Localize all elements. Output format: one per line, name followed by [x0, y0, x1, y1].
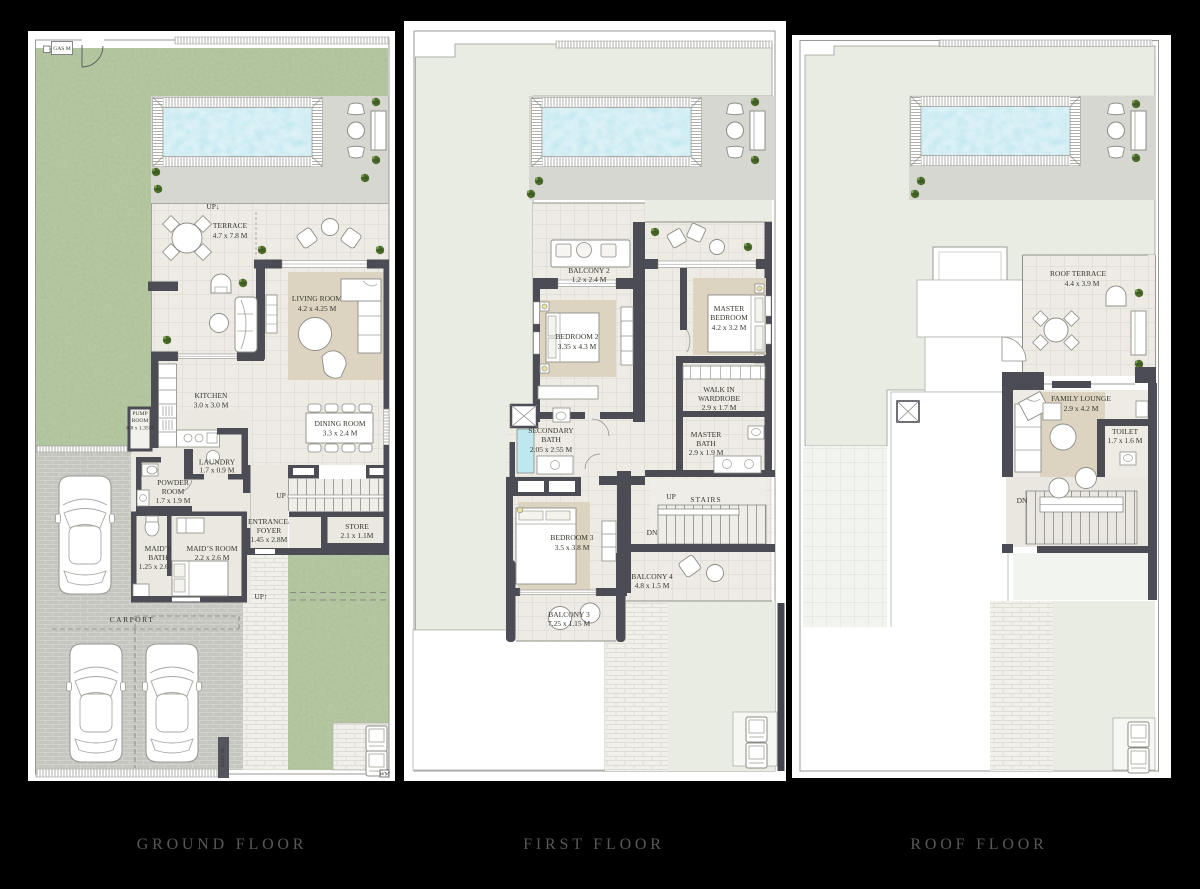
svg-text:3.3 x 2.4 M: 3.3 x 2.4 M: [323, 429, 358, 438]
svg-text:1.2 x 2.4 M: 1.2 x 2.4 M: [572, 275, 607, 284]
svg-text:4.2 x 3.2 M: 4.2 x 3.2 M: [712, 323, 747, 332]
svg-text:POWDER: POWDER: [157, 478, 189, 487]
svg-text:ROOF FLOOR: ROOF FLOOR: [910, 836, 1047, 853]
svg-text:BEDROOM: BEDROOM: [710, 313, 748, 322]
svg-text:BALCONY 2: BALCONY 2: [568, 266, 610, 275]
svg-text:4.7 x 7.8 M: 4.7 x 7.8 M: [213, 231, 248, 240]
svg-text:ROOF TERRACE: ROOF TERRACE: [1050, 269, 1106, 278]
svg-text:CARPORT: CARPORT: [110, 615, 155, 624]
svg-text:STAIRS: STAIRS: [690, 495, 721, 504]
svg-text:BALCONY 3: BALCONY 3: [548, 610, 590, 619]
svg-text:BATH: BATH: [541, 435, 561, 444]
svg-text:MASTER: MASTER: [691, 430, 721, 439]
svg-text:MAID’S: MAID’S: [145, 544, 172, 553]
svg-text:1.7 x 1.6 M: 1.7 x 1.6 M: [1108, 436, 1143, 445]
svg-text:FIRST FLOOR: FIRST FLOOR: [523, 836, 665, 853]
svg-text:GROUND FLOOR: GROUND FLOOR: [137, 836, 308, 853]
svg-text:UP↓: UP↓: [206, 202, 219, 211]
svg-text:2.9 x 4.2 M: 2.9 x 4.2 M: [1064, 404, 1099, 413]
svg-text:BATH: BATH: [148, 553, 168, 562]
svg-text:1.45 x 2.8M: 1.45 x 2.8M: [251, 535, 288, 544]
svg-text:2.9 x 1.7 M: 2.9 x 1.7 M: [702, 403, 737, 412]
svg-text:TERRACE: TERRACE: [213, 221, 248, 230]
svg-text:STORE: STORE: [345, 522, 369, 531]
svg-text:2.05 x 2.55 M: 2.05 x 2.55 M: [530, 445, 573, 454]
svg-text:BEDROOM 3: BEDROOM 3: [550, 533, 593, 542]
svg-text:3.5 x 3.8 M: 3.5 x 3.8 M: [555, 543, 590, 552]
svg-text:7.25 x 1.15 M: 7.25 x 1.15 M: [548, 619, 591, 628]
svg-text:FOYER: FOYER: [257, 526, 282, 535]
svg-text:WARDROBE: WARDROBE: [698, 394, 741, 403]
svg-text:BATH: BATH: [696, 439, 716, 448]
svg-text:2.2 x 2.6 M: 2.2 x 2.6 M: [195, 553, 230, 562]
svg-text:1.7 x 0.9 M: 1.7 x 0.9 M: [200, 466, 235, 475]
svg-text:BALCONY 4: BALCONY 4: [631, 572, 673, 581]
svg-text:4.8 x 1.5 M: 4.8 x 1.5 M: [635, 581, 670, 590]
svg-text:DN: DN: [1017, 496, 1028, 505]
svg-text:KITCHEN: KITCHEN: [195, 391, 228, 400]
svg-text:LIVING ROOM: LIVING ROOM: [292, 294, 343, 303]
svg-text:DINING ROOM: DINING ROOM: [314, 419, 365, 428]
svg-text:3.35 x 4.3 M: 3.35 x 4.3 M: [558, 342, 597, 351]
svg-text:WALK IN: WALK IN: [703, 385, 735, 394]
svg-text:SECONDARY: SECONDARY: [528, 426, 574, 435]
svg-text:BEDROOM 2: BEDROOM 2: [555, 332, 598, 341]
svg-text:UP↑: UP↑: [254, 592, 267, 601]
svg-text:ELEC M.: ELEC M.: [221, 747, 226, 766]
svg-text:0.8 x 1.35M: 0.8 x 1.35M: [126, 426, 153, 432]
svg-text:PUMP: PUMP: [132, 411, 147, 417]
svg-text:2.1 x 1.1M: 2.1 x 1.1M: [341, 531, 374, 540]
svg-text:GAS M: GAS M: [53, 46, 71, 52]
svg-text:WM: WM: [379, 772, 389, 778]
svg-text:4.4 x 3.9 M: 4.4 x 3.9 M: [1065, 279, 1100, 288]
svg-text:2.9 x 1.9 M: 2.9 x 1.9 M: [689, 448, 724, 457]
svg-text:DN: DN: [647, 528, 658, 537]
svg-text:4.2 x 4.25 M: 4.2 x 4.25 M: [298, 304, 337, 313]
svg-text:3.0 x 3.0 M: 3.0 x 3.0 M: [194, 401, 229, 410]
svg-text:ROOM: ROOM: [132, 418, 149, 424]
svg-text:FAMILY LOUNGE: FAMILY LOUNGE: [1051, 394, 1111, 403]
svg-text:1.7 x 1.9 M: 1.7 x 1.9 M: [156, 496, 191, 505]
svg-text:ENTRANCE/: ENTRANCE/: [248, 517, 291, 526]
svg-text:TOILET: TOILET: [1112, 427, 1139, 436]
svg-text:UP: UP: [666, 492, 676, 501]
svg-text:MAID’S ROOM: MAID’S ROOM: [186, 544, 237, 553]
svg-text:MASTER: MASTER: [714, 304, 744, 313]
svg-text:UP: UP: [276, 491, 286, 500]
